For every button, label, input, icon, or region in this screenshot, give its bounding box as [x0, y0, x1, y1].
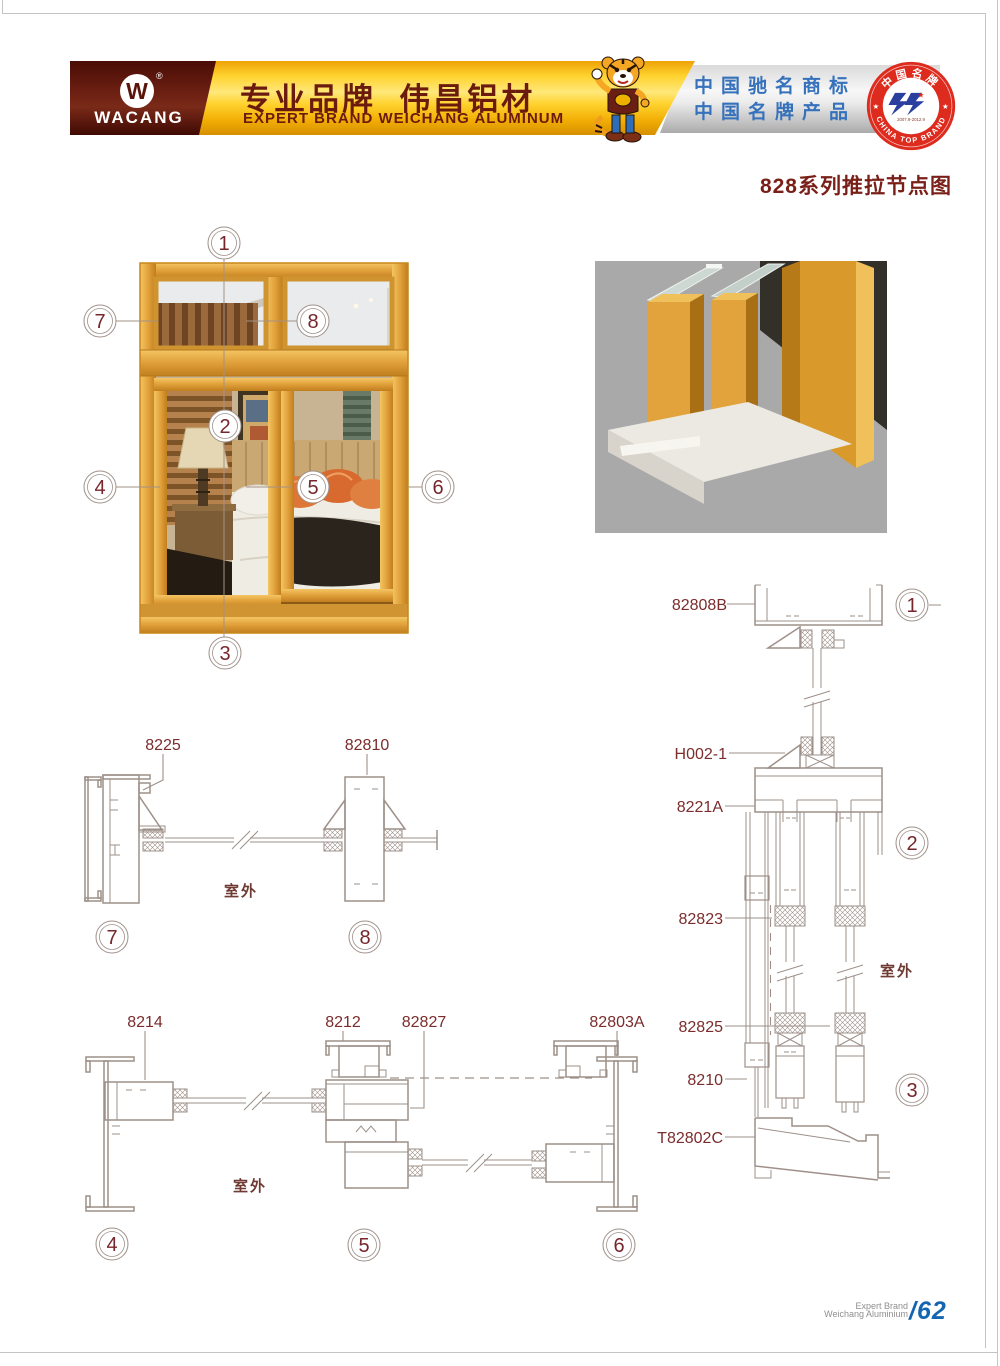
label-8214: 8214 — [127, 1014, 163, 1031]
label-8221A: 8221A — [677, 799, 724, 816]
wacang-wordmark: WACANG — [81, 108, 197, 128]
tiger-hand — [592, 69, 602, 79]
profile-8214-drawing — [86, 1057, 187, 1211]
svg-text:7: 7 — [94, 311, 105, 333]
profile-8212-82827-drawing — [312, 1041, 422, 1188]
callout-7: 7 — [84, 305, 116, 337]
profile-82808B-drawing — [755, 585, 882, 648]
brand-slogan-en: EXPERT BRAND WEICHANG ALUMINUM — [243, 110, 564, 127]
callout-detail-4: 4 — [96, 1228, 128, 1260]
svg-text:2: 2 — [219, 416, 230, 438]
footer-page-number: /62 — [909, 1297, 947, 1326]
leader-lines — [143, 754, 367, 790]
callout-detail-6: 6 — [603, 1229, 635, 1261]
detail-transom-section — [85, 754, 437, 903]
profile-82810-drawing — [324, 777, 437, 901]
label-8225: 8225 — [145, 737, 181, 754]
label-82827: 82827 — [402, 1014, 447, 1031]
frame-top-line — [2, 13, 985, 14]
china-top-brand-seal: 中国名牌 CHINA TOP BRAND ★ ★ ★ 2007.9-2012.9 — [864, 59, 958, 153]
profile-H002-8221A-drawing — [755, 737, 882, 822]
label-82808B: 82808B — [672, 597, 727, 614]
profile-8225-drawing — [85, 775, 165, 903]
callout-detail-8: 8 — [349, 921, 381, 953]
footer-brand-line2: Weichang Aluminium — [770, 1310, 908, 1318]
frame-left-tick — [2, 0, 3, 14]
seal-star-right: ★ — [942, 102, 949, 111]
svg-text:4: 4 — [106, 1234, 117, 1256]
glass-line — [422, 1154, 532, 1172]
seal-star-left: ★ — [872, 102, 879, 111]
seal-red-star: ★ — [918, 91, 925, 100]
figures-canvas: 1 7 8 2 4 5 6 3 — [0, 210, 1000, 1310]
label-8212: 8212 — [325, 1014, 361, 1031]
detail-transom-callouts: 7 8 — [96, 921, 381, 953]
page-title: 828系列推拉节点图 — [600, 170, 952, 200]
callout-5: 5 — [297, 471, 329, 503]
callout-6: 6 — [422, 471, 454, 503]
svg-text:3: 3 — [219, 643, 230, 665]
label-8210: 8210 — [687, 1072, 723, 1089]
callout-detail-1: 1 — [896, 589, 928, 621]
callout-8: 8 — [297, 305, 329, 337]
frame-bottom-line — [0, 1352, 998, 1353]
svg-text:2: 2 — [906, 833, 917, 855]
svg-text:8: 8 — [307, 311, 318, 333]
svg-text:4: 4 — [94, 477, 105, 499]
glass-line — [165, 831, 336, 849]
profile-3d-render — [595, 261, 887, 533]
svg-text:8: 8 — [359, 927, 370, 949]
detail-horizontal-callouts: 4 5 6 — [96, 1228, 635, 1261]
svg-text:5: 5 — [307, 477, 318, 499]
profile-82803A-drawing — [532, 1041, 637, 1211]
label-82823: 82823 — [679, 911, 724, 928]
label-82810: 82810 — [345, 737, 390, 754]
svg-text:1: 1 — [906, 595, 917, 617]
svg-text:3: 3 — [906, 1080, 917, 1102]
callout-detail-7: 7 — [96, 921, 128, 953]
outdoor-label-bottom: 室外 — [233, 1177, 267, 1195]
seal-years: 2007.9-2012.9 — [897, 117, 925, 122]
callout-1: 1 — [208, 227, 240, 259]
label-82803A: 82803A — [589, 1014, 644, 1031]
tiger-mascot — [590, 55, 654, 145]
callout-2: 2 — [209, 410, 241, 442]
label-82825: 82825 — [679, 1019, 724, 1036]
label-H002-1: H002-1 — [675, 746, 728, 763]
callout-detail-5: 5 — [348, 1229, 380, 1261]
footer-brand: Expert Brand Weichang Aluminium — [770, 1302, 908, 1318]
callout-detail-2: 2 — [896, 827, 928, 859]
leader-lines — [725, 604, 941, 1137]
callout-detail-3: 3 — [896, 1074, 928, 1106]
detail-vertical-callouts: 1 2 3 — [896, 589, 928, 1106]
callout-3: 3 — [209, 637, 241, 669]
detail-horizontal-section — [86, 1031, 637, 1211]
svg-text:5: 5 — [358, 1235, 369, 1257]
svg-text:7: 7 — [106, 927, 117, 949]
outdoor-label-vertical: 室外 — [880, 962, 914, 980]
svg-text:6: 6 — [613, 1235, 624, 1257]
profile-T82802C-drawing — [755, 1118, 890, 1180]
award-line2: 中国名牌产品 — [694, 100, 856, 126]
callout-4: 4 — [84, 471, 116, 503]
glass-line — [187, 1092, 316, 1110]
registered-mark: ® — [156, 71, 163, 81]
svg-text:6: 6 — [432, 477, 443, 499]
window-photo: 1 7 8 2 4 5 6 3 — [84, 227, 454, 669]
outdoor-label-top: 室外 — [224, 882, 258, 900]
svg-text:W: W — [126, 78, 148, 104]
label-T82802C: T82802C — [657, 1130, 723, 1147]
wacang-logo-block: W ® WACANG — [70, 61, 216, 135]
sash-vertical-drawing — [745, 812, 882, 1117]
award-line1: 中国驰名商标 — [694, 74, 856, 100]
catalog-page: 中国驰名商标 中国名牌产品 专业品牌 伟昌铝材 EXPERT BRAND WEI… — [0, 0, 1000, 1366]
award-text: 中国驰名商标 中国名牌产品 — [694, 74, 856, 126]
svg-text:1: 1 — [218, 233, 229, 255]
